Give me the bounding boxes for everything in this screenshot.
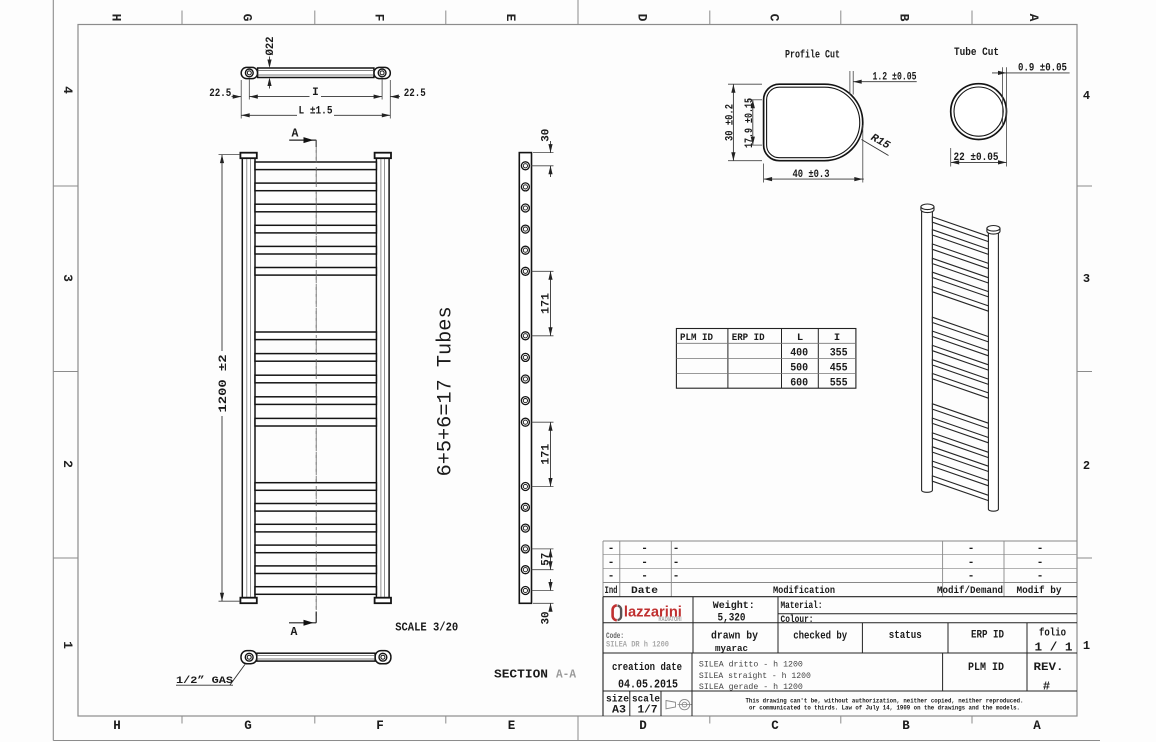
svg-text:1: 1 — [60, 641, 75, 649]
svg-text:A3: A3 — [612, 705, 626, 717]
svg-text:30 ±0.2: 30 ±0.2 — [725, 104, 737, 141]
svg-text:size: size — [606, 693, 629, 705]
svg-text:or communicated to thirds. Law: or communicated to thirds. Law of July 1… — [749, 705, 1020, 713]
svg-text:-: - — [673, 571, 680, 583]
svg-text:22.5: 22.5 — [209, 88, 231, 100]
svg-text:PLM ID: PLM ID — [680, 332, 713, 344]
svg-text:355: 355 — [830, 347, 848, 359]
svg-text:-: - — [641, 557, 648, 569]
svg-text:-: - — [608, 543, 615, 555]
svg-text:B: B — [897, 14, 912, 22]
svg-text:5,320: 5,320 — [718, 612, 746, 624]
svg-text:22.5: 22.5 — [404, 88, 426, 100]
svg-text:6+5+6=17 Tubes: 6+5+6=17 Tubes — [435, 306, 458, 476]
svg-text:#: # — [1043, 680, 1050, 694]
svg-text:E: E — [503, 14, 518, 22]
svg-text:3: 3 — [60, 274, 75, 282]
svg-text:SECTION: SECTION — [494, 669, 548, 682]
svg-text:A-A: A-A — [556, 669, 576, 682]
svg-text:455: 455 — [830, 362, 848, 374]
svg-text:-: - — [608, 571, 615, 583]
svg-text:555: 555 — [830, 377, 848, 389]
svg-text:E: E — [508, 719, 516, 733]
svg-text:L ±1.5: L ±1.5 — [299, 106, 333, 118]
svg-text:500: 500 — [790, 362, 808, 374]
svg-text:-: - — [1037, 543, 1044, 555]
svg-text:-: - — [968, 557, 975, 569]
svg-text:folio: folio — [1039, 627, 1066, 639]
svg-text:SILEA DR h 1200: SILEA DR h 1200 — [606, 641, 669, 650]
svg-text:SILEA straight - h 1200: SILEA straight - h 1200 — [699, 671, 811, 681]
svg-text:-: - — [608, 557, 615, 569]
svg-text:status: status — [889, 630, 922, 642]
svg-text:scale: scale — [632, 693, 660, 705]
svg-text:22 ±0.05: 22 ±0.05 — [954, 152, 999, 164]
svg-text:Profile Cut: Profile Cut — [785, 50, 840, 62]
svg-text:Code:: Code: — [606, 632, 624, 641]
svg-text:G: G — [240, 14, 255, 22]
svg-text:1/2” GAS: 1/2” GAS — [176, 675, 233, 687]
svg-text:SILEA gerade - h 1200: SILEA gerade - h 1200 — [699, 682, 803, 692]
svg-text:04.05.2015: 04.05.2015 — [618, 677, 678, 691]
svg-text:L: L — [797, 332, 803, 344]
svg-text:1/7: 1/7 — [638, 705, 658, 717]
svg-text:creation date: creation date — [612, 662, 682, 674]
svg-text:-: - — [673, 557, 680, 569]
svg-text:4: 4 — [1083, 89, 1090, 103]
svg-text:A: A — [1026, 14, 1041, 22]
svg-text:A: A — [291, 626, 298, 639]
svg-text:2: 2 — [60, 460, 75, 468]
svg-text:Modif by: Modif by — [1017, 585, 1063, 597]
svg-text:C: C — [771, 719, 779, 733]
svg-text:D: D — [635, 14, 650, 22]
svg-text:3: 3 — [1083, 272, 1090, 286]
svg-text:REV.: REV. — [1034, 662, 1064, 674]
svg-text:Tube Cut: Tube Cut — [954, 47, 999, 59]
svg-text:Ø22: Ø22 — [265, 37, 277, 56]
svg-text:drawn by: drawn by — [711, 630, 758, 642]
svg-text:H: H — [113, 719, 121, 733]
svg-text:Modif/Demand: Modif/Demand — [937, 585, 1003, 597]
svg-text:2: 2 — [1083, 459, 1090, 473]
svg-text:G: G — [244, 719, 252, 733]
svg-text:1: 1 — [1083, 639, 1090, 653]
svg-text:F: F — [372, 14, 387, 22]
svg-text:-: - — [641, 543, 648, 555]
svg-text:A: A — [1033, 719, 1041, 733]
svg-text:Date: Date — [631, 585, 658, 597]
svg-text:30: 30 — [540, 129, 552, 142]
svg-text:ERP ID: ERP ID — [971, 629, 1004, 641]
svg-text:1 / 1: 1 / 1 — [1035, 640, 1073, 654]
svg-text:Ind: Ind — [605, 585, 618, 597]
svg-text:-: - — [1037, 571, 1044, 583]
svg-text:-: - — [968, 543, 975, 555]
svg-text:checked by: checked by — [793, 630, 847, 642]
svg-text:SCALE 3/20: SCALE 3/20 — [395, 622, 458, 635]
svg-text:RADIATORI: RADIATORI — [659, 617, 682, 623]
svg-text:I: I — [312, 87, 319, 99]
svg-text:4: 4 — [60, 86, 75, 94]
svg-text:Material:: Material: — [781, 600, 823, 612]
svg-text:C: C — [767, 14, 782, 22]
svg-text:F: F — [376, 719, 384, 733]
svg-text:17.9 ±0.15: 17.9 ±0.15 — [744, 98, 756, 148]
svg-text:H: H — [109, 14, 124, 22]
svg-text:-: - — [673, 543, 680, 555]
svg-text:1200 ±2: 1200 ±2 — [218, 355, 230, 413]
svg-text:171: 171 — [540, 293, 552, 314]
svg-text:SILEA dritto - h 1200: SILEA dritto - h 1200 — [699, 659, 803, 669]
svg-text:30: 30 — [540, 612, 552, 625]
svg-text:-: - — [1037, 557, 1044, 569]
svg-text:1.2 ±0.05: 1.2 ±0.05 — [873, 71, 917, 83]
svg-text:B: B — [902, 719, 910, 733]
svg-text:400: 400 — [790, 347, 808, 359]
svg-text:Modification: Modification — [773, 585, 835, 597]
svg-text:171: 171 — [540, 443, 552, 464]
svg-text:-: - — [968, 571, 975, 583]
svg-text:600: 600 — [790, 377, 808, 389]
svg-text:40 ±0.3: 40 ±0.3 — [793, 169, 830, 181]
svg-text:D: D — [639, 719, 647, 733]
svg-text:Colour:: Colour: — [781, 614, 814, 626]
svg-text:ERP ID: ERP ID — [732, 332, 765, 344]
svg-text:-: - — [641, 571, 648, 583]
svg-text:PLM ID: PLM ID — [968, 662, 1004, 674]
svg-text:myarac: myarac — [715, 644, 748, 654]
svg-text:I: I — [834, 332, 840, 344]
svg-text:A: A — [292, 128, 299, 141]
svg-text:57: 57 — [540, 553, 552, 566]
svg-text:0.9 ±0.05: 0.9 ±0.05 — [1018, 63, 1067, 75]
svg-text:Weight:: Weight: — [713, 600, 755, 612]
